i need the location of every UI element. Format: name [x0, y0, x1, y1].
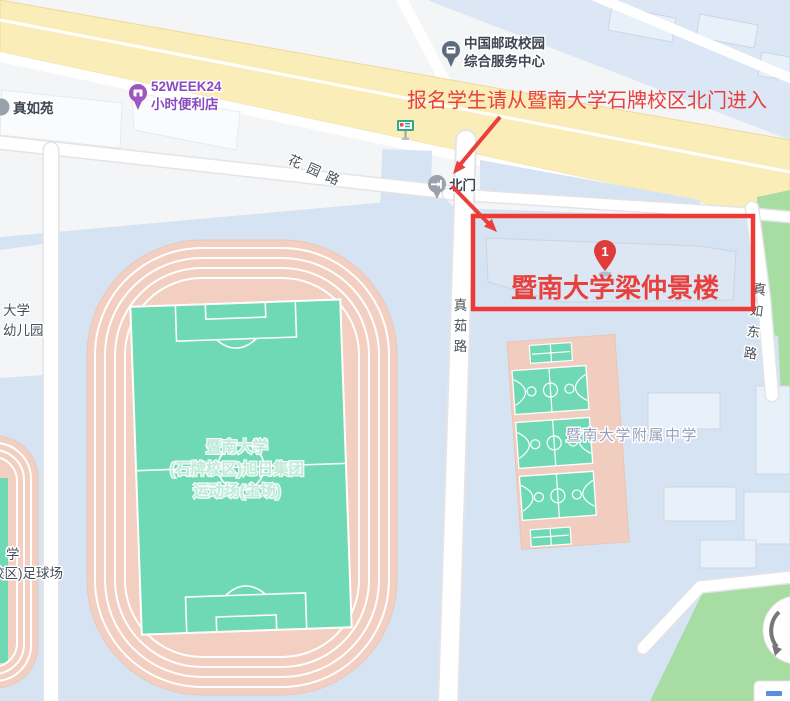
poi-label[interactable]: 真如苑 [13, 100, 54, 116]
poi-label-line1[interactable]: 中国邮政校园 [464, 35, 545, 51]
affiliated-school-label[interactable]: 暨南大学附属中学 [566, 427, 698, 444]
map-button-icon [766, 691, 782, 696]
building [700, 540, 756, 568]
football-label-line1: 学 [6, 547, 20, 562]
stadium-label-line2: (石牌校区)旭日集团 [170, 459, 304, 478]
poi-label-line1[interactable]: 52WEEK24 [151, 79, 222, 94]
road-label-zhenru: 真茹路 [452, 298, 468, 360]
football-label-line2: 校区)足球场 [0, 565, 63, 581]
kindergarten-label-line2: 幼儿园 [3, 323, 44, 338]
poi-label-line2[interactable]: 小时便利店 [151, 96, 219, 112]
marker-number: 1 [601, 244, 608, 259]
stadium-label-line1: 暨南大学 [206, 437, 268, 456]
building [744, 492, 790, 544]
stadium-label-line3: 运动场(主场) [193, 481, 281, 500]
map-canvas[interactable]: 真如苑 52WEEK24 小时便利店 中国邮政校园 综合服务中心 北门 花园路 … [0, 0, 790, 701]
map-button[interactable] [754, 681, 790, 701]
poi-label-line2[interactable]: 综合服务中心 [464, 53, 545, 69]
annotation-notice-text: 报名学生请从暨南大学石牌校区北门进入 [407, 89, 767, 112]
west-football-field [0, 436, 38, 688]
annotation-building-label: 暨南大学梁仲景楼 [511, 273, 719, 303]
building [664, 487, 736, 521]
building [648, 393, 720, 429]
kindergarten-label-line1: 大学 [3, 303, 30, 318]
